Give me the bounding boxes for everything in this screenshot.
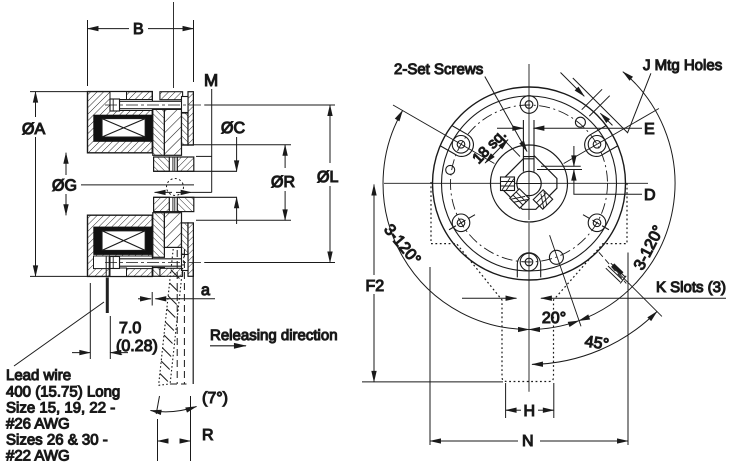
svg-text:Lead wire: Lead wire	[6, 367, 71, 384]
svg-text:J Mtg Holes: J Mtg Holes	[643, 57, 722, 74]
svg-text:Releasing direction: Releasing direction	[210, 327, 338, 344]
svg-text:ØL: ØL	[317, 169, 338, 186]
svg-text:H: H	[524, 403, 536, 420]
svg-text:Size 15, 19, 22 -: Size 15, 19, 22 -	[6, 400, 115, 417]
svg-text:2-Set Screws: 2-Set Screws	[394, 61, 483, 78]
svg-text:E: E	[644, 121, 655, 138]
svg-text:#26 AWG: #26 AWG	[6, 416, 70, 433]
svg-text:a: a	[201, 282, 210, 299]
svg-text:N: N	[522, 433, 534, 450]
svg-text:ØC: ØC	[221, 120, 245, 137]
svg-text:K Slots (3): K Slots (3)	[656, 279, 726, 296]
svg-text:20°: 20°	[542, 310, 566, 327]
svg-text:ØA: ØA	[22, 121, 45, 138]
svg-text:R: R	[202, 427, 214, 444]
svg-text:ØG: ØG	[52, 178, 77, 195]
svg-text:D: D	[644, 187, 656, 204]
svg-text:(7°): (7°)	[202, 390, 228, 407]
svg-text:7.0: 7.0	[119, 320, 141, 337]
svg-text:45°: 45°	[584, 333, 610, 353]
svg-text:Sizes 26 & 30 -: Sizes 26 & 30 -	[6, 432, 108, 449]
svg-text:400 (15.75) Long: 400 (15.75) Long	[6, 384, 120, 401]
svg-text:ØR: ØR	[271, 174, 295, 191]
svg-text:B: B	[133, 21, 144, 38]
svg-text:#22 AWG: #22 AWG	[6, 448, 70, 465]
svg-text:M: M	[204, 71, 218, 90]
svg-text:F2: F2	[366, 278, 385, 295]
